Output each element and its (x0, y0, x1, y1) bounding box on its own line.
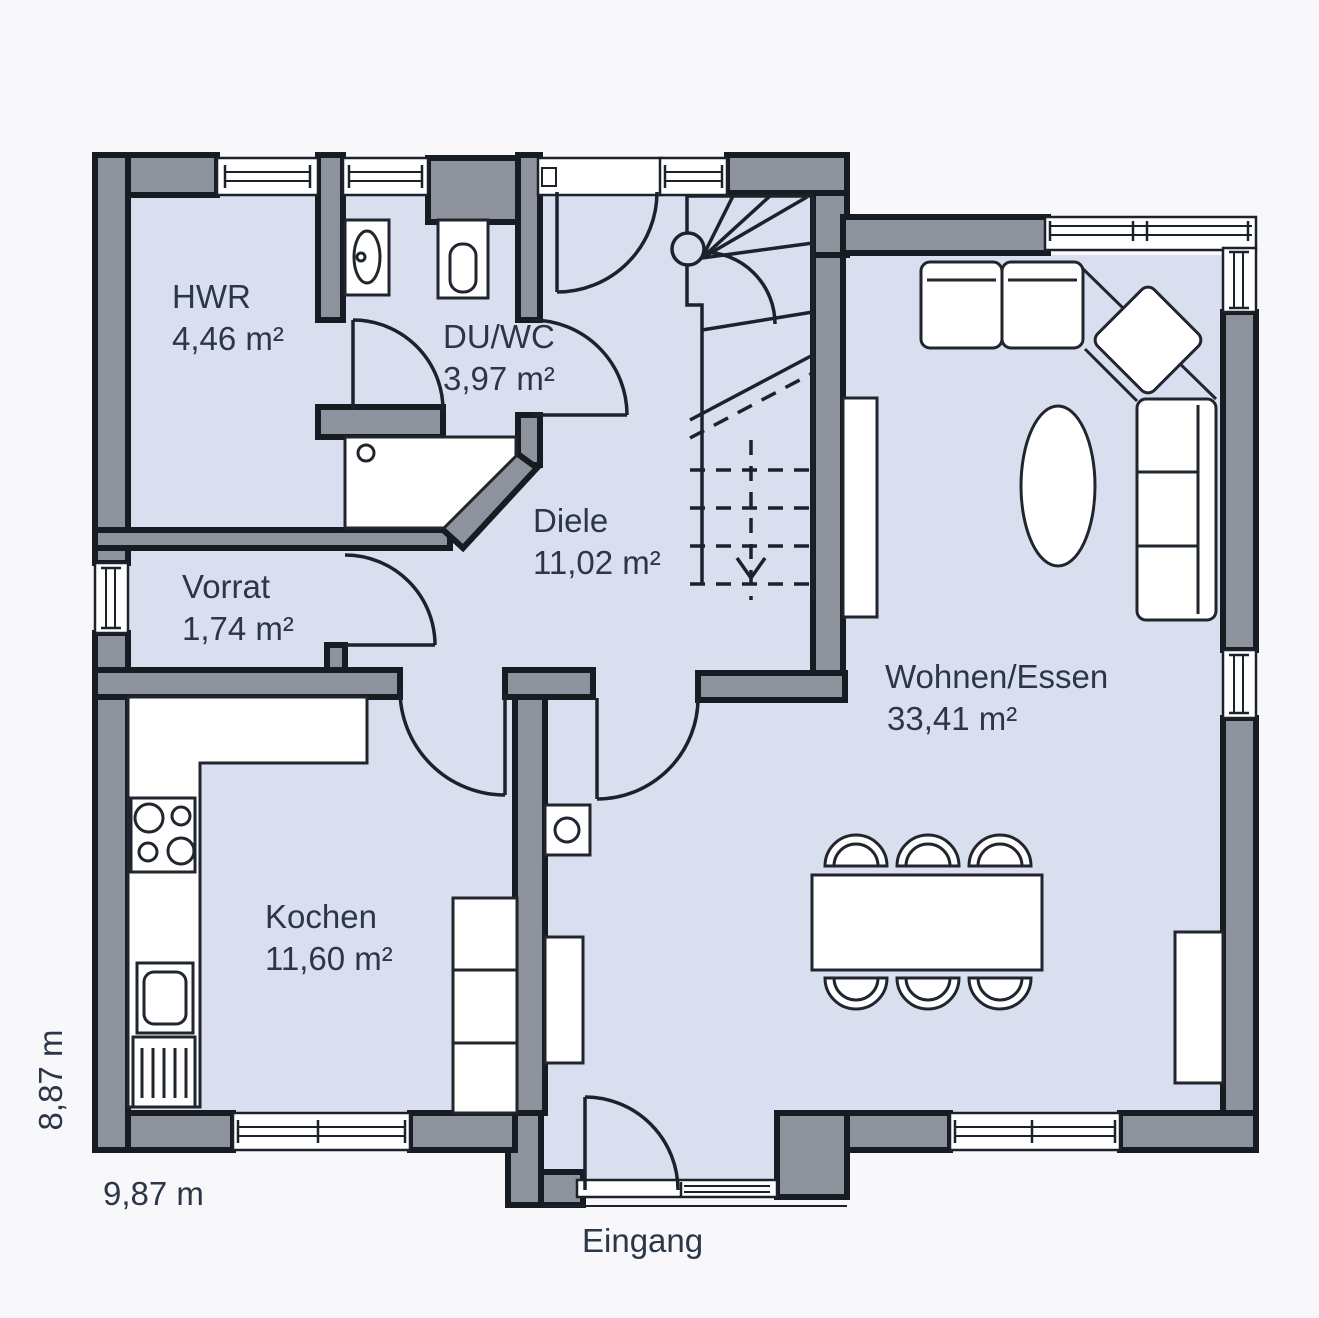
room-name-diele: Diele (533, 502, 608, 539)
room-area-kochen: 11,60 m² (265, 940, 393, 977)
window-kitchen-bottom (233, 1113, 410, 1150)
sideboard (1175, 932, 1223, 1083)
room-area-diele: 11,02 m² (533, 544, 661, 581)
wall-diele-south-right (698, 673, 845, 700)
room-name-duwc: DU/WC (443, 318, 555, 355)
wall-stair-living (813, 255, 843, 700)
width-dimension-label: 9,87 m (103, 1175, 204, 1212)
wall-right-upper (1223, 312, 1256, 650)
kitchen-sink (137, 963, 193, 1033)
wall-wc-cistern (428, 158, 520, 222)
wall-duwc-right-upper (518, 155, 540, 320)
kitchen-tall-cabinets (453, 898, 517, 1113)
wall-hwr-bottom (95, 530, 450, 548)
cooktop (131, 798, 195, 872)
wall-diele-south-left (505, 670, 593, 697)
room-name-vorrat: Vorrat (182, 568, 270, 605)
window-corner-vertical (1223, 248, 1256, 312)
wall-right-lower (1223, 718, 1256, 1150)
washbasin (345, 220, 389, 295)
sofa-seat-2 (1002, 262, 1083, 348)
window-living-bottom (950, 1113, 1120, 1150)
wall-top-right-block (727, 155, 847, 193)
window-corner-horizontal (1045, 217, 1256, 250)
floorplan-drawing: HWR 4,46 m² DU/WC 3,97 m² Diele 11,02 m²… (0, 0, 1319, 1318)
tv-lowboard (843, 398, 877, 617)
room-name-wohnen: Wohnen/Essen (885, 658, 1108, 695)
sofa-seat-1 (921, 262, 1002, 348)
floorplan-page: HWR 4,46 m² DU/WC 3,97 m² Diele 11,02 m²… (0, 0, 1319, 1318)
entrance-label: Eingang (582, 1222, 703, 1259)
room-area-vorrat: 1,74 m² (182, 610, 294, 647)
wall-bottom-kitchen-right (410, 1113, 515, 1150)
dining-table (812, 875, 1042, 970)
wall-entrance-right (777, 1113, 847, 1197)
wall-hwr-duwc-upper (318, 155, 343, 320)
wall-left-upper (95, 155, 128, 563)
wall-kitchen-top (95, 670, 400, 697)
wall-living-top (843, 217, 1048, 253)
wall-bottom-right-corner (1120, 1113, 1256, 1150)
sofa-right-arm (1137, 399, 1216, 620)
wall-below-basin (318, 407, 443, 437)
room-area-wohnen: 33,41 m² (887, 700, 1017, 737)
wall-kitchen-right (515, 697, 545, 1113)
window-stair-top (660, 158, 727, 195)
toilet (438, 220, 488, 298)
window-right-lower (1223, 650, 1256, 718)
room-name-kochen: Kochen (265, 898, 377, 935)
stair-newel-post (672, 233, 704, 265)
entrance-wardrobe (545, 937, 583, 1063)
side-door-threshold (538, 158, 662, 195)
technical-box (545, 805, 590, 855)
dishwasher (133, 1037, 195, 1107)
wall-bottom-living-left (843, 1113, 950, 1150)
window-hwr-top (217, 158, 318, 195)
coffee-table (1021, 406, 1095, 566)
wall-left-lower (95, 633, 128, 1150)
height-dimension-label: 8,87 m (32, 1030, 69, 1131)
window-vorrat-left (95, 563, 128, 633)
room-area-duwc: 3,97 m² (443, 360, 555, 397)
room-name-hwr: HWR (172, 278, 251, 315)
room-area-hwr: 4,46 m² (172, 320, 284, 357)
window-duwc-top (343, 158, 428, 195)
